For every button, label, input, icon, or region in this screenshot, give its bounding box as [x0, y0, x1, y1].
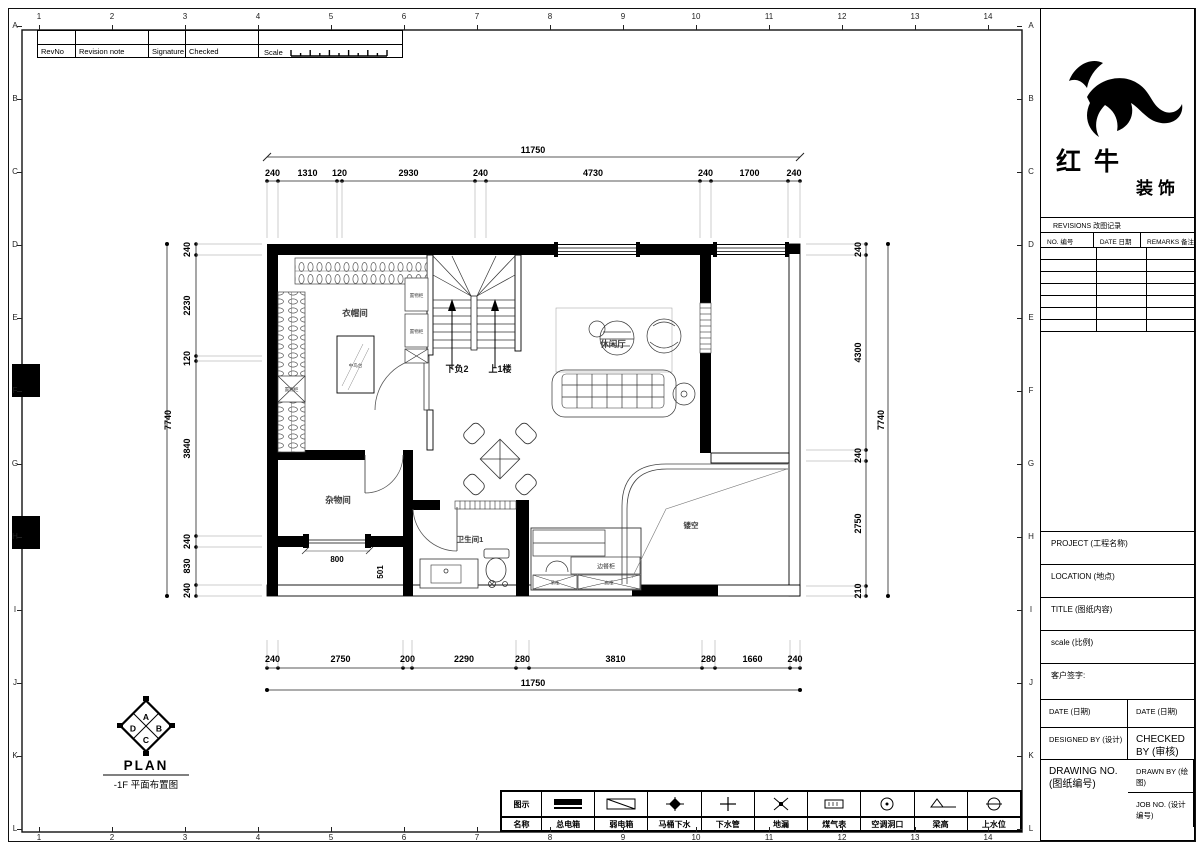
grid-tick: [842, 827, 843, 832]
grid-tick: [1017, 245, 1022, 246]
void-area: [622, 464, 788, 584]
leisure-hall-furniture: [552, 303, 711, 417]
title-block-bottom-grid: DATE (日期) DATE (日期) DESIGNED BY (设计) CHE…: [1041, 699, 1194, 827]
gap-dim-label: 501: [376, 565, 385, 579]
room-label-bathroom: 卫生间1: [457, 534, 484, 544]
dim-bottom-seg: 240: [265, 654, 280, 664]
toilet-drain-icon: [648, 792, 701, 816]
grid-column-label-bottom: 6: [397, 833, 411, 842]
drawn-by-cell: DRAWN BY (绘图): [1128, 760, 1194, 793]
dim-top-seg: 120: [332, 168, 347, 178]
grid-tick: [1017, 537, 1022, 538]
water-supply-icon: [968, 792, 1020, 816]
bathroom-fixtures: [420, 549, 509, 588]
revision-empty-row: [1041, 307, 1194, 319]
stairs-up-label: 上1楼: [488, 363, 511, 374]
drawing-sheet: 2401310120293024047302401700240240275020…: [0, 0, 1200, 849]
grid-column-label-top: 11: [762, 12, 776, 21]
grid-tick: [477, 827, 478, 832]
ac-hole-icon: [861, 792, 914, 816]
designed-by-cell: DESIGNED BY (设计): [1041, 728, 1128, 760]
dim-bottom-seg: 2750: [330, 654, 350, 664]
cabinet-lower-label: 置物柜: [410, 328, 424, 335]
grid-tick: [1017, 26, 1022, 27]
company-name: 红牛: [1056, 142, 1132, 178]
grid-tick: [331, 25, 332, 30]
grid-tick: [112, 25, 113, 30]
dim-top-total: 11750: [521, 145, 546, 155]
grid-tick: [1017, 610, 1022, 611]
dim-left-seg: 240: [182, 583, 192, 598]
dim-left-seg: 2230: [182, 295, 192, 315]
grid-row-label-right: L: [1024, 824, 1038, 833]
company-name-suffix: 装饰: [1136, 174, 1180, 199]
grid-tick: [1017, 391, 1022, 392]
revision-note-header: Revision note: [76, 45, 149, 58]
room-label-cloakroom: 衣帽间: [342, 308, 368, 318]
revision-strip: RevNo Revision note Signature Checked Sc…: [37, 30, 403, 58]
grid-tick: [1017, 172, 1022, 173]
dim-left-seg: 240: [182, 534, 192, 549]
grid-tick: [915, 827, 916, 832]
revno-header: RevNo: [38, 45, 76, 58]
legend-name-3: 下水管: [702, 818, 755, 830]
grid-column-label-bottom: 10: [689, 833, 703, 842]
tall-cabinet-label: 高柜: [604, 580, 614, 587]
grid-row-label-right: F: [1024, 386, 1038, 395]
revision-empty-row: [1041, 247, 1194, 259]
grid-tick: [17, 318, 22, 319]
legend-name-row: 名称 总电箱弱电箱马桶下水下水管地漏煤气表空调洞口梁高上水位: [502, 816, 1020, 830]
stairs: [433, 256, 515, 368]
grid-tick: [17, 756, 22, 757]
grid-column-label-top: 7: [470, 12, 484, 21]
revision-empty-row: [1041, 319, 1194, 331]
revision-empty-row: [1041, 295, 1194, 307]
grid-tick: [39, 827, 40, 832]
grid-column-label-top: 13: [908, 12, 922, 21]
grid-tick: [17, 26, 22, 27]
grid-tick: [1017, 464, 1022, 465]
title-field: TITLE (图纸内容): [1041, 597, 1194, 630]
grid-tick: [769, 25, 770, 30]
side-cabinet-label: 边餐柜: [597, 563, 615, 571]
date-right-cell: DATE (日期): [1128, 700, 1194, 728]
grid-tick: [623, 25, 624, 30]
dim-left-seg: 830: [182, 558, 192, 573]
bottom-cabinets: [531, 528, 641, 590]
legend-name-header: 名称: [502, 818, 542, 830]
inline-dimensions: 800 501: [302, 547, 385, 579]
revisions-column-headers: NO. 编号 DATE 日期 REMARKS 备注: [1041, 232, 1194, 247]
scale-cell: Scale: [259, 45, 402, 58]
legend-name-7: 梁高: [915, 818, 968, 830]
grid-tick: [1017, 99, 1022, 100]
revisions-title: REVISIONS 改图记录: [1041, 217, 1194, 232]
legend-name-8: 上水位: [968, 818, 1020, 830]
dim-right-seg: 240: [853, 448, 863, 463]
marker-letter-a: A: [143, 712, 149, 722]
legend-name-4: 地漏: [755, 818, 808, 830]
grid-tick: [39, 25, 40, 30]
hanging-cabinet-label: 吊柜: [550, 580, 560, 587]
checked-by-cell: CHECKED BY (审核): [1128, 728, 1194, 760]
grid-tick: [842, 25, 843, 30]
company-logo: 红牛 装饰: [1041, 9, 1194, 217]
grid-column-label-bottom: 13: [908, 833, 922, 842]
grid-row-label-right: C: [1024, 167, 1038, 176]
grid-tick: [17, 391, 22, 392]
weak-electric-box-icon: [595, 792, 648, 816]
grid-tick: [17, 464, 22, 465]
revision-strip-header-row: RevNo Revision note Signature Checked Sc…: [38, 44, 402, 58]
room-label-storage: 杂物间: [325, 495, 351, 505]
title-block: 红牛 装饰 REVISIONS 改图记录 NO. 编号 DATE 日期 REMA…: [1040, 8, 1195, 841]
rev-col-remarks: REMARKS 备注: [1141, 233, 1194, 247]
grid-column-label-bottom: 5: [324, 833, 338, 842]
dim-right-seg: 4300: [853, 342, 863, 362]
dim-left-seg: 120: [182, 351, 192, 366]
marker-letter-c: C: [143, 735, 149, 745]
grid-column-label-bottom: 7: [470, 833, 484, 842]
grid-tick: [17, 99, 22, 100]
grid-tick: [550, 827, 551, 832]
grid-tick: [331, 827, 332, 832]
room-label-leisure-hall: 休闲厅: [599, 339, 626, 349]
grid-column-label-top: 9: [616, 12, 630, 21]
dim-bottom-seg: 200: [400, 654, 415, 664]
location-field: LOCATION (地点): [1041, 564, 1194, 597]
grid-tick: [17, 829, 22, 830]
grid-row-label-right: I: [1024, 605, 1038, 614]
grid-row-label-right: H: [1024, 532, 1038, 541]
grid-row-label-right: K: [1024, 751, 1038, 760]
room-label-void: 镂空: [684, 520, 699, 530]
rev-col-date: DATE 日期: [1094, 233, 1141, 247]
grid-tick: [112, 827, 113, 832]
grid-column-label-bottom: 12: [835, 833, 849, 842]
scale-field: scale (比例): [1041, 630, 1194, 663]
grid-tick: [1017, 829, 1022, 830]
grid-column-label-bottom: 14: [981, 833, 995, 842]
legend-name-6: 空调洞口: [861, 818, 914, 830]
cabinet-upper-label: 置物柜: [410, 292, 424, 299]
grid-column-label-bottom: 11: [762, 833, 776, 842]
grid-tick: [17, 537, 22, 538]
sofa: [552, 370, 676, 417]
dim-right-seg: 2750: [853, 513, 863, 533]
grid-column-label-top: 14: [981, 12, 995, 21]
revision-empty-row: [1041, 259, 1194, 271]
grid-column-label-top: 12: [835, 12, 849, 21]
client-signature-field: 客户签字:: [1041, 663, 1194, 699]
revisions-empty-rows: [1041, 247, 1194, 331]
plan-title-marker: A B C D PLAN -1F 平面布置图: [95, 693, 205, 798]
legend-name-2: 马桶下水: [648, 818, 701, 830]
grid-tick: [769, 827, 770, 832]
dim-top-seg: 2930: [398, 168, 418, 178]
grid-tick: [696, 827, 697, 832]
marker-letter-b: B: [156, 724, 162, 734]
plan-title: PLAN: [124, 758, 169, 773]
scale-bar: [289, 48, 389, 58]
dim-top-seg: 240: [265, 168, 280, 178]
stairs-down-label: 下负2: [445, 363, 468, 374]
island-label: 中岛台: [349, 362, 363, 369]
grid-tick: [477, 25, 478, 30]
grid-tick: [17, 245, 22, 246]
grid-column-label-bottom: 2: [105, 833, 119, 842]
grid-column-label-top: 8: [543, 12, 557, 21]
grid-tick: [258, 827, 259, 832]
dim-bottom-seg: 280: [701, 654, 716, 664]
grid-column-label-top: 5: [324, 12, 338, 21]
grid-tick: [185, 25, 186, 30]
floor-drain-icon: [755, 792, 808, 816]
grid-column-label-bottom: 8: [543, 833, 557, 842]
grid-tick: [550, 25, 551, 30]
grid-row-label-right: E: [1024, 313, 1038, 322]
grid-tick: [623, 827, 624, 832]
signature-header: Signature: [149, 45, 186, 58]
dim-right-total: 7740: [876, 410, 886, 430]
grid-column-label-top: 1: [32, 12, 46, 21]
dim-left-seg: 240: [182, 242, 192, 257]
dim-bottom-seg: 3810: [605, 654, 625, 664]
grid-tick: [17, 610, 22, 611]
grid-tick: [1017, 756, 1022, 757]
grid-tick: [915, 25, 916, 30]
plan-subtitle: -1F 平面布置图: [114, 779, 178, 791]
dim-bottom-total: 11750: [521, 678, 546, 688]
dining-set: [462, 421, 539, 497]
date-left-cell: DATE (日期): [1041, 700, 1128, 728]
legend-name-1: 弱电箱: [595, 818, 648, 830]
window-dim-label: 800: [330, 555, 344, 564]
radiator: [700, 303, 711, 353]
grid-column-label-bottom: 4: [251, 833, 265, 842]
legend-name-5: 煤气表: [808, 818, 861, 830]
grid-tick: [258, 25, 259, 30]
grid-tick: [185, 827, 186, 832]
dim-top-seg: 1700: [739, 168, 759, 178]
grid-row-label-right: G: [1024, 459, 1038, 468]
grid-column-label-top: 6: [397, 12, 411, 21]
drawing-no-cell: DRAWING NO. (图纸编号): [1041, 760, 1128, 827]
legend-bar: 图示 名称 总电箱弱电箱马桶下水下水管地漏煤气表空调洞口梁高上水位: [500, 790, 1022, 832]
job-no-cell: JOB NO. (设计编号): [1128, 793, 1194, 827]
project-field: PROJECT (工程名称): [1041, 531, 1194, 564]
legend-icon-header: 图示: [502, 792, 542, 816]
marker-letter-d: D: [130, 724, 136, 734]
dim-bottom-seg: 2290: [454, 654, 474, 664]
dim-bottom-seg: 1660: [742, 654, 762, 664]
cloakroom-wardrobes: [278, 258, 428, 452]
grid-row-label-right: J: [1024, 678, 1038, 687]
grid-tick: [404, 827, 405, 832]
dim-top-seg: 240: [473, 168, 488, 178]
grid-tick: [17, 172, 22, 173]
revision-empty-row: [1041, 283, 1194, 295]
dim-left-seg: 3840: [182, 438, 192, 458]
revision-strip-empty-row: [38, 31, 402, 44]
grid-tick: [17, 683, 22, 684]
dim-top-seg: 1310: [297, 168, 317, 178]
grid-column-label-top: 3: [178, 12, 192, 21]
dim-right-seg: 240: [853, 242, 863, 257]
grid-column-label-top: 4: [251, 12, 265, 21]
grid-tick: [404, 25, 405, 30]
grid-column-label-top: 2: [105, 12, 119, 21]
checked-header: Checked: [186, 45, 259, 58]
revision-empty-row: [1041, 271, 1194, 283]
cabinet-left-label: 置物柜: [285, 386, 299, 393]
grid-column-label-bottom: 1: [32, 833, 46, 842]
dim-top-seg: 4730: [583, 168, 603, 178]
rev-col-no: NO. 编号: [1041, 233, 1094, 247]
title-block-spacer: [1041, 331, 1194, 531]
grid-tick: [988, 827, 989, 832]
gas-meter-icon: [808, 792, 861, 816]
grid-tick: [696, 25, 697, 30]
grid-row-label-right: D: [1024, 240, 1038, 249]
grid-tick: [1017, 318, 1022, 319]
dim-bottom-seg: 280: [515, 654, 530, 664]
scale-label: Scale: [264, 48, 283, 57]
dim-right-seg: 210: [853, 583, 863, 598]
beam-height-icon: [915, 792, 968, 816]
grid-tick: [1017, 683, 1022, 684]
drain-pipe-icon: [702, 792, 755, 816]
dim-top-seg: 240: [786, 168, 801, 178]
grid-row-label-right: A: [1024, 21, 1038, 30]
grid-column-label-bottom: 3: [178, 833, 192, 842]
legend-icon-row: 图示: [502, 792, 1020, 816]
grid-row-label-right: B: [1024, 94, 1038, 103]
grid-column-label-top: 10: [689, 12, 703, 21]
grid-column-label-bottom: 9: [616, 833, 630, 842]
dim-bottom-seg: 240: [787, 654, 802, 664]
tub-chair: [647, 319, 681, 353]
main-electric-box-icon: [542, 792, 595, 816]
dim-top-seg: 240: [698, 168, 713, 178]
dim-left-total: 7740: [163, 410, 173, 430]
grid-tick: [988, 25, 989, 30]
